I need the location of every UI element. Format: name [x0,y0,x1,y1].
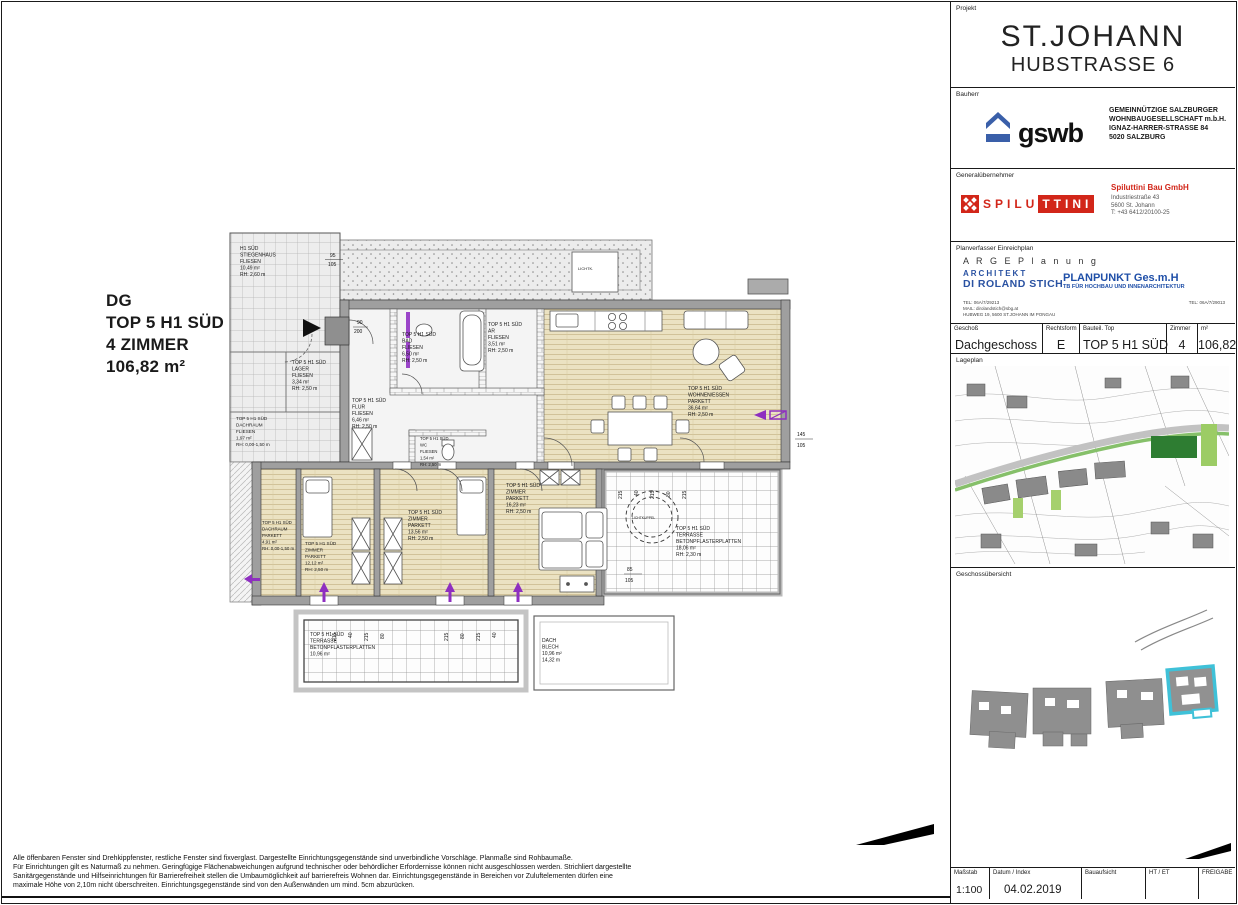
dimension-label: 215 [364,632,370,641]
address-line: Industriestraße 43 [1111,195,1189,203]
north-arrow [856,824,934,845]
planverfasser-label: Planverfasser Einreichplan [956,245,1033,252]
dimension-label: 200 [354,329,363,335]
col-header: HT / ET [1149,870,1170,876]
col-header: Zimmer [1170,326,1190,332]
dimension-label: 215 [332,632,338,641]
cell-datum: Datum / Index 04.02.2019 [990,868,1082,899]
cell-freigabe: FREIGABE [1199,868,1235,899]
index-arrow [1183,841,1233,861]
bottom-rule [2,896,950,898]
kontakt-rechts: TEL: 06A/7/29013 [1189,300,1225,305]
dimension-label: 95 [330,253,336,259]
col-value: TOP 5 H1 SÜD [1080,338,1169,352]
gswb-wordmark: gswb [1018,122,1083,144]
lageplan-label: Lageplan [956,357,983,364]
arge-text: A R G E P l a n u n g [963,256,1098,266]
dimension-label: 40 [634,490,640,496]
company-name: Spiluttini Bau GmbH [1111,183,1189,192]
projekt-label: Projekt [956,5,976,12]
geschossuebersicht-label: Geschossübersicht [956,571,1011,578]
project-subtitle: HUBSTRASSE 6 [951,54,1235,77]
col-header: FREIGABE [1202,870,1232,876]
col-header: Rechtsform [1046,326,1077,332]
dimension-label: 105 [625,578,634,584]
cell-rechtsform: Rechtsform E [1043,324,1080,354]
dimension-label: 215 [618,490,624,499]
col-value: E [1043,338,1079,352]
disclaimer-line: Für Einrichtungen gilt es Naturmaß zu ne… [13,863,743,872]
col-header: Geschoß [954,326,978,332]
spiluttini-logo-icon [961,195,979,213]
address-line: IGNAZ-HARRER-STRASSE 84 [1109,124,1226,133]
section-lageplan: Lageplan [951,354,1235,568]
col-header: Maßstab [954,870,977,876]
address-line: GEMEINNÜTZIGE SALZBURGER [1109,106,1226,115]
architekt-name: DI ROLAND STICH [963,278,1063,290]
gswb-logo-icon [985,110,1011,144]
site-plan-map [955,366,1229,564]
section-bauherr: Bauherr gswb GEMEINNÜTZIGE SALZBURGERWOH… [951,88,1235,169]
dimension-label: 80 [666,491,672,497]
address-line: WOHNBAUGESELLSCHAFT m.b.H. [1109,115,1226,124]
dimension-label: 80 [460,633,466,639]
plan-sheet: DGTOP 5 H1 SÜD4 ZIMMER106,82 m² [0,0,1238,905]
gswb-logo: gswb [985,110,1083,144]
col-value: 4 [1167,338,1197,352]
kontakt-line: HUBWEG 19, 5600 ST.JOHANN IM PONGAU [963,312,1055,318]
col-header: Bauaufsicht [1085,870,1116,876]
planpunkt-name: PLANPUNKT Ges.m.H [1063,272,1185,284]
info-table: Maßstab 1:100 Datum / Index 04.02.2019 B… [951,868,1235,899]
address-line: T: +43 6412/20100-25 [1111,210,1189,218]
col-header: Bauteil. Top [1083,326,1114,332]
planpunkt-block: PLANPUNKT Ges.m.H TB FÜR HOCHBAU UND INN… [1063,272,1185,290]
unit-data-table: Geschoß Dachgeschoss Rechtsform E Bautei… [951,324,1235,354]
dimension-label: 215 [444,632,450,641]
cell-bauaufsicht: Bauaufsicht [1082,868,1146,899]
planpunkt-subtitle: TB FÜR HOCHBAU UND INNENARCHITEKTUR [1063,284,1185,290]
bauherr-label: Bauherr [956,91,979,98]
col-value: 106,82 [1198,338,1235,352]
dimension-label: 80 [380,633,386,639]
architekt-block: ARCHITEKT DI ROLAND STICH [963,269,1063,290]
dimension-label: 40 [348,632,354,638]
generaluebernehmer-address: Spiluttini Bau GmbH Industriestraße 4356… [1111,183,1189,218]
generaluebernehmer-label: Generalübernehmer [956,172,1014,179]
section-generaluebernehmer: Generalübernehmer SPILUTTINI Spiluttini … [951,169,1235,242]
cell-ht-et: HT / ET [1146,868,1199,899]
disclaimer-line: maximale Höhe von 2,10m nicht überschrei… [13,881,743,890]
section-planverfasser: Planverfasser Einreichplan A R G E P l a… [951,242,1235,324]
dimension-label: 215 [682,490,688,499]
section-geschossuebersicht: Geschossübersicht [951,568,1235,868]
address-line: 5600 St. Johann [1111,203,1189,211]
title-block: Projekt ST.JOHANN HUBSTRASSE 6 Bauherr g… [950,2,1235,903]
room-label: LICHTKUPPEL [632,516,655,520]
col-value: 1:100 [956,884,982,896]
room-label: LICHTK. [578,266,593,271]
col-value: Dachgeschoss [951,338,1046,352]
spiluttini-wordmark-right: TTINI [1038,195,1094,213]
address-line: 5020 SALZBURG [1109,133,1226,142]
dimension-label: 90 [357,320,363,326]
company-address: Industriestraße 435600 St. JohannT: +43 … [1111,195,1189,218]
cell-bauteil-top: Bauteil. Top TOP 5 H1 SÜD [1080,324,1167,354]
dimension-label: 40 [492,632,498,638]
dimension-label: 105 [797,443,806,449]
spiluttini-wordmark-left: SPILU [983,197,1038,211]
col-header: Datum / Index [993,870,1030,876]
section-projekt: Projekt ST.JOHANN HUBSTRASSE 6 [951,2,1235,88]
cell-zimmer: Zimmer 4 [1167,324,1198,354]
col-header: m² [1201,326,1208,332]
dimension-label: 85 [627,567,633,573]
architekt-title: ARCHITEKT [963,269,1063,278]
cell-massstab: Maßstab 1:100 [951,868,990,899]
spiluttini-logo: SPILUTTINI [961,195,1094,213]
bauherr-address: GEMEINNÜTZIGE SALZBURGERWOHNBAUGESELLSCH… [1109,106,1226,142]
dimension-label: 215 [476,632,482,641]
floor-plan-drawing: H1 SÜDSTIEGENHAUSFLIESEN10,49 m²RH: 2,60… [0,0,950,850]
dimension-label: 145 [797,432,806,438]
floor-overview-map [955,580,1229,820]
kontakt-links: TEL: 06A/7/29213MAIL: dirolandstich@sbg.… [963,300,1055,318]
project-title: ST.JOHANN [951,20,1235,54]
cell-flaeche: m² 106,82 [1198,324,1235,354]
disclaimer-line: Sanitärgegenstände und Hilfseinrichtunge… [13,872,743,881]
dimension-label: 215 [650,490,656,499]
col-value: 04.02.2019 [1004,884,1062,896]
cell-geschoss: Geschoß Dachgeschoss [951,324,1043,354]
disclaimer-text: Alle öffenbaren Fenster sind Drehkippfen… [13,854,743,890]
disclaimer-line: Alle öffenbaren Fenster sind Drehkippfen… [13,854,743,863]
dimension-label: 105 [328,262,337,268]
